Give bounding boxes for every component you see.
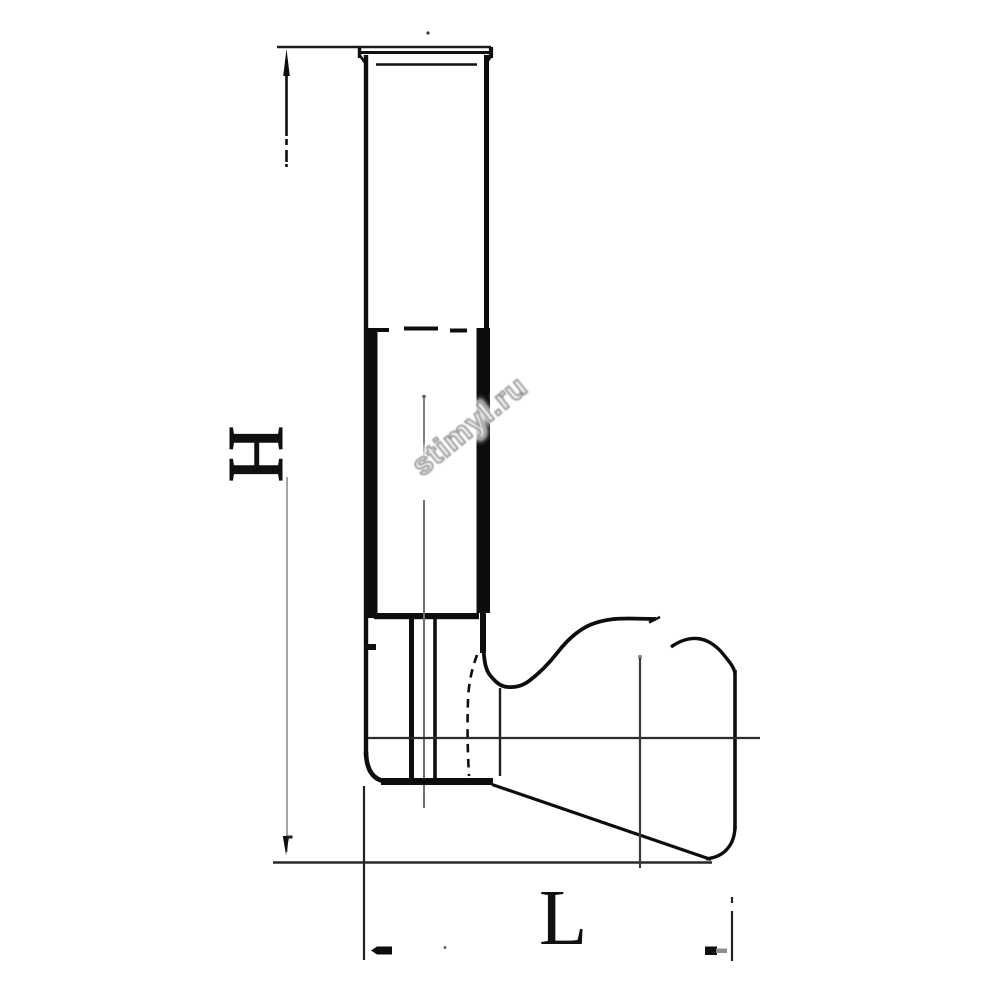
svg-text:H: H xyxy=(214,426,301,482)
svg-text:L: L xyxy=(539,875,587,962)
